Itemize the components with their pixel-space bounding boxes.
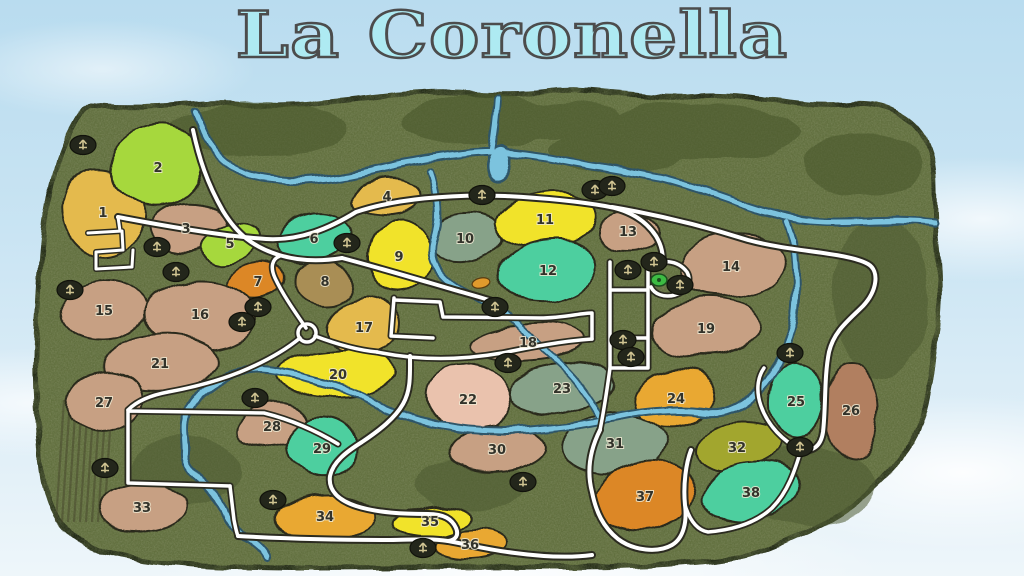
- field-number-5: 5: [225, 237, 234, 252]
- field-number-35: 35: [421, 515, 439, 530]
- farm-marker-icon: [495, 354, 521, 373]
- field-number-18: 18: [519, 336, 537, 351]
- field-number-8: 8: [320, 275, 329, 290]
- farm-marker-icon: [610, 331, 636, 350]
- field-number-32: 32: [728, 441, 746, 456]
- farm-marker-icon: [787, 438, 813, 457]
- farm-marker-icon: [667, 276, 693, 295]
- farm-marker-icon: [618, 348, 644, 367]
- field-number-26: 26: [842, 404, 860, 419]
- field-number-6: 6: [309, 232, 318, 247]
- field-number-14: 14: [722, 260, 740, 275]
- field-number-24: 24: [667, 392, 685, 407]
- farm-marker-icon: [615, 261, 641, 280]
- field-number-4: 4: [382, 190, 391, 205]
- field-number-9: 9: [394, 250, 403, 265]
- field-number-33: 33: [133, 501, 151, 516]
- farm-marker-icon: [510, 473, 536, 492]
- field-number-28: 28: [263, 420, 281, 435]
- field-number-37: 37: [636, 490, 654, 505]
- field-number-13: 13: [619, 225, 637, 240]
- farm-marker-icon: [482, 298, 508, 317]
- farm-marker-icon: [144, 238, 170, 257]
- field-number-2: 2: [153, 161, 162, 176]
- field-number-12: 12: [539, 264, 557, 279]
- farm-marker-icon: [260, 491, 286, 510]
- field-number-25: 25: [787, 395, 805, 410]
- field-number-17: 17: [355, 321, 373, 336]
- farm-marker-icon: [777, 344, 803, 363]
- farm-marker-icon: [641, 253, 667, 272]
- field-number-15: 15: [95, 304, 113, 319]
- farm-marker-icon: [92, 459, 118, 478]
- field-number-16: 16: [191, 308, 209, 323]
- field-number-27: 27: [95, 396, 113, 411]
- farm-marker-icon: [469, 186, 495, 205]
- field-number-30: 30: [488, 443, 506, 458]
- field-number-19: 19: [697, 322, 715, 337]
- farm-marker-icon: [163, 263, 189, 282]
- field-number-29: 29: [313, 442, 331, 457]
- farm-marker-icon: [334, 234, 360, 253]
- start-marker-icon: [651, 274, 667, 286]
- field-number-3: 3: [181, 222, 190, 237]
- field-number-22: 22: [459, 393, 477, 408]
- farm-marker-icon: [57, 281, 83, 300]
- field-number-1: 1: [98, 206, 107, 221]
- field-number-20: 20: [329, 368, 347, 383]
- farm-marker-icon: [229, 313, 255, 332]
- field-number-7: 7: [253, 275, 262, 290]
- field-number-36: 36: [461, 538, 479, 553]
- field-number-34: 34: [316, 510, 334, 525]
- field-number-10: 10: [456, 232, 474, 247]
- field-number-23: 23: [553, 382, 571, 397]
- map-canvas: 1234567891011121314151617181920212223242…: [0, 0, 1024, 576]
- field-number-11: 11: [536, 213, 554, 228]
- farm-marker-icon: [599, 177, 625, 196]
- field-number-38: 38: [742, 486, 760, 501]
- farm-marker-icon: [242, 389, 268, 408]
- farm-marker-icon: [410, 539, 436, 558]
- farm-marker-icon: [70, 136, 96, 155]
- field-number-31: 31: [606, 437, 624, 452]
- map-screenshot: La Coronella: [0, 0, 1024, 576]
- field-number-21: 21: [151, 357, 169, 372]
